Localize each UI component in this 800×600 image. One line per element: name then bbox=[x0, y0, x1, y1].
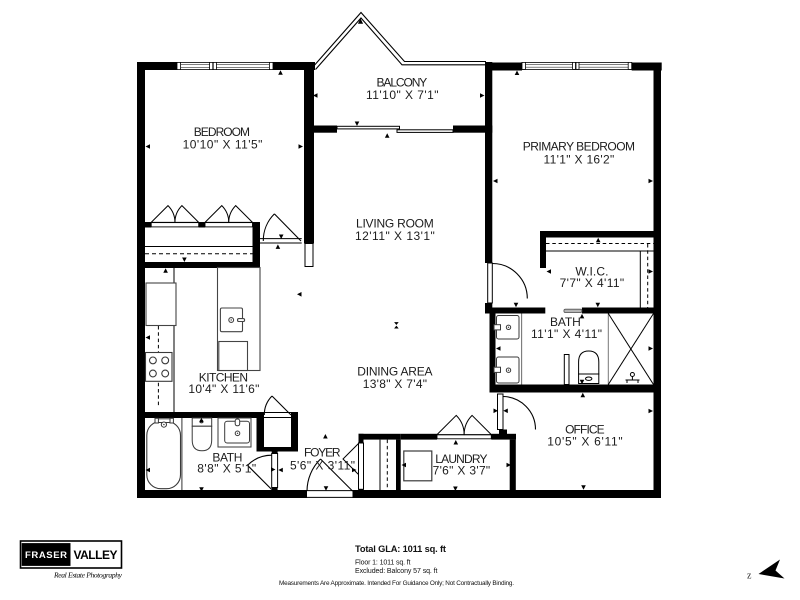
svg-text:8'8" X 5'1": 8'8" X 5'1" bbox=[197, 462, 256, 476]
svg-text:PRIMARY BEDROOM: PRIMARY BEDROOM bbox=[523, 140, 636, 154]
svg-text:Excluded: Balcony 57 sq. ft: Excluded: Balcony 57 sq. ft bbox=[355, 568, 438, 575]
svg-text:Total GLA: 1011 sq. ft: Total GLA: 1011 sq. ft bbox=[355, 544, 446, 554]
svg-text:12'11" X 13'1": 12'11" X 13'1" bbox=[355, 229, 435, 243]
svg-text:11'1" X 16'2": 11'1" X 16'2" bbox=[544, 153, 615, 167]
svg-text:11'1" X 4'11": 11'1" X 4'11" bbox=[531, 327, 602, 341]
svg-text:10'10" X 11'5": 10'10" X 11'5" bbox=[183, 138, 263, 152]
svg-text:Measurements Are Approximate.: Measurements Are Approximate. Intended F… bbox=[279, 580, 514, 587]
svg-text:Real Estate Photography: Real Estate Photography bbox=[53, 571, 123, 580]
svg-text:Floor 1: 1011 sq. ft: Floor 1: 1011 sq. ft bbox=[355, 559, 411, 566]
svg-text:10'4" X 11'6": 10'4" X 11'6" bbox=[188, 382, 259, 396]
svg-text:VALLEY: VALLEY bbox=[74, 548, 118, 562]
svg-text:z: z bbox=[747, 571, 752, 582]
svg-text:11'10" X 7'1": 11'10" X 7'1" bbox=[366, 88, 439, 102]
svg-text:7'7" X 4'11": 7'7" X 4'11" bbox=[560, 276, 625, 290]
svg-text:13'8" X 7'4": 13'8" X 7'4" bbox=[363, 377, 428, 391]
svg-text:7'6" X 3'7": 7'6" X 3'7" bbox=[433, 464, 491, 478]
svg-text:FOYER: FOYER bbox=[304, 446, 341, 460]
svg-text:5'6" X 3'11": 5'6" X 3'11" bbox=[290, 459, 355, 473]
svg-text:10'5" X 6'11": 10'5" X 6'11" bbox=[547, 435, 623, 449]
svg-text:FRASER: FRASER bbox=[25, 550, 67, 561]
